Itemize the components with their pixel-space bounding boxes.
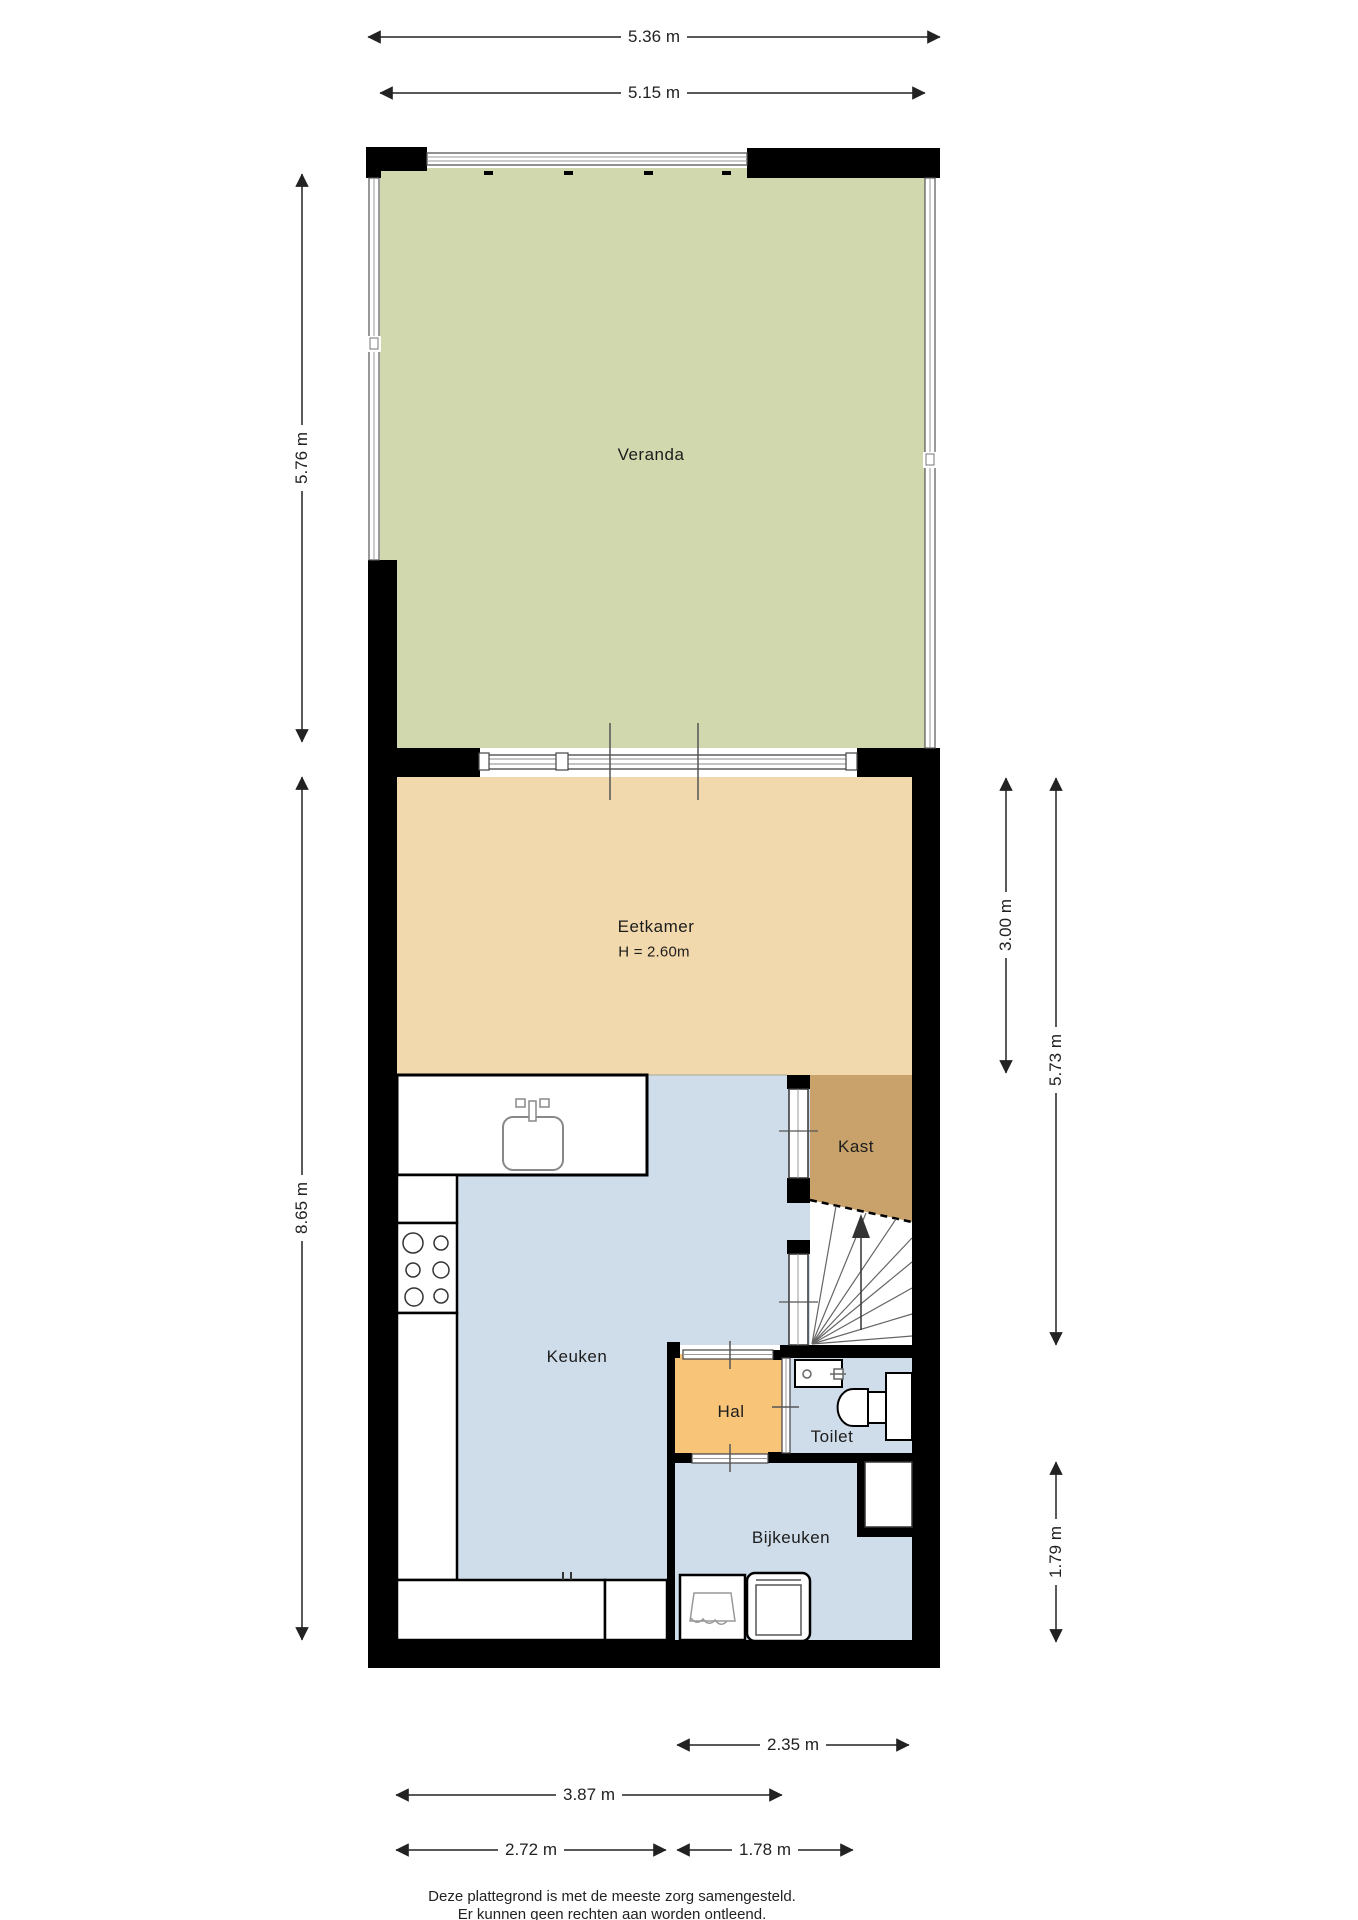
kitchen-counter-bottom-right	[605, 1580, 667, 1640]
niche-bottom-wall	[857, 1527, 913, 1537]
disclaimer-line-2: Er kunnen geen rechten aan worden ontlee…	[458, 1906, 767, 1920]
dim-bottom-bijkeuken: 2.35 m	[760, 1735, 826, 1755]
dim-left-house: 8.65 m	[292, 1175, 312, 1241]
stairs-divider-seg2	[787, 1178, 810, 1203]
toilet-label: Toilet	[811, 1427, 854, 1447]
niche-left-wall	[857, 1462, 865, 1537]
veranda-tick-3	[644, 171, 653, 175]
dim-top-inner: 5.15 m	[621, 83, 687, 103]
kitchen-cabinet-small	[397, 1175, 457, 1223]
right-wall	[912, 748, 940, 1668]
hal-bottom-right-corner	[768, 1452, 790, 1463]
bottom-wall	[368, 1640, 940, 1668]
veranda-bottom-wall-left	[368, 748, 480, 777]
eetkamer-height-label: H = 2.60m	[618, 944, 689, 961]
dim-right-bijkeuken: 1.79 m	[1046, 1519, 1066, 1585]
dim-right-eetkamer: 3.00 m	[996, 892, 1016, 958]
kitchen-counter-bottom-left	[397, 1580, 605, 1640]
tap-handle-right	[540, 1099, 549, 1107]
bijkeuken-niche	[865, 1462, 912, 1527]
eetkamer-label: Eetkamer	[618, 917, 695, 937]
window-mullion-2	[556, 753, 568, 770]
stairs-divider-seg3	[787, 1240, 810, 1254]
kitchen-cabinet-tall	[397, 1313, 457, 1580]
wc-bowl	[838, 1389, 868, 1426]
hal-top-left-corner	[667, 1342, 680, 1358]
veranda-tick-1	[484, 171, 493, 175]
veranda-right-glass-joint	[926, 454, 934, 465]
hal-label: Hal	[717, 1402, 744, 1422]
dim-right-mid: 5.73 m	[1046, 1027, 1066, 1093]
left-wall	[368, 560, 397, 1668]
eetkamer-window-band	[480, 755, 857, 769]
dim-left-veranda: 5.76 m	[292, 425, 312, 491]
wc-tank	[868, 1392, 886, 1423]
toilet-cabinet	[886, 1373, 912, 1440]
stairs-divider-seg1	[787, 1075, 810, 1089]
hal-bottom-left-corner	[667, 1453, 692, 1463]
floorplan-page: Veranda Eetkamer H = 2.60m Kast Keuken H…	[0, 0, 1358, 1920]
veranda-tick-2	[564, 171, 573, 175]
kast-label: Kast	[838, 1137, 874, 1157]
window-mullion-3	[846, 753, 857, 770]
veranda-top-glass	[427, 153, 747, 165]
veranda-left-glass-joint	[370, 338, 378, 349]
laundry-sink	[680, 1575, 745, 1640]
dim-bottom-keuken: 3.87 m	[556, 1785, 622, 1805]
stairs-toilet-wall	[780, 1345, 940, 1358]
kitchen-sink	[503, 1117, 563, 1170]
bijkeuken-label: Bijkeuken	[752, 1528, 830, 1548]
veranda-label: Veranda	[618, 445, 685, 465]
veranda-post-top-right	[747, 148, 940, 178]
veranda-tick-4	[722, 171, 731, 175]
keuken-label: Keuken	[547, 1347, 608, 1367]
dim-bottom-hal: 1.78 m	[732, 1840, 798, 1860]
disclaimer-line-1: Deze plattegrond is met de meeste zorg s…	[428, 1888, 796, 1905]
dim-bottom-keuken-left: 2.72 m	[498, 1840, 564, 1860]
window-mullion-1	[479, 753, 489, 770]
tap-handle-left	[516, 1099, 525, 1107]
dim-top-outer: 5.36 m	[621, 27, 687, 47]
veranda-bottom-wall-right	[857, 748, 940, 777]
tap-spout	[529, 1101, 536, 1121]
